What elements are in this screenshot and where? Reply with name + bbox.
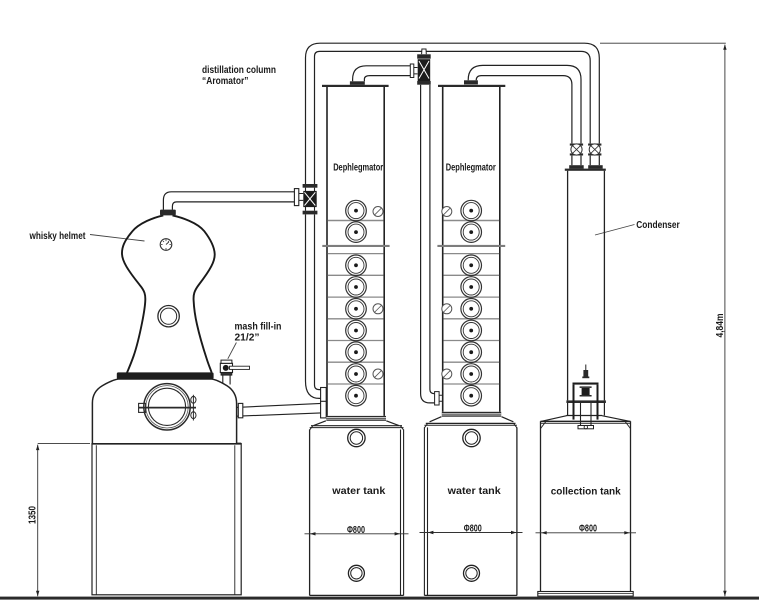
svg-text:“Aromator”: “Aromator” [202, 75, 249, 87]
svg-text:Condenser: Condenser [636, 219, 680, 231]
svg-text:whisky helmet: whisky helmet [29, 230, 86, 242]
svg-text:Dephlegmator: Dephlegmator [333, 163, 383, 174]
svg-text:water tank: water tank [331, 485, 385, 497]
svg-text:water tank: water tank [447, 485, 501, 497]
svg-text:Dephlegmator: Dephlegmator [446, 163, 496, 174]
svg-text:Φ800: Φ800 [347, 525, 365, 536]
svg-text:4,84m: 4,84m [715, 313, 726, 337]
svg-text:21/2”: 21/2” [235, 332, 260, 344]
svg-text:collection tank: collection tank [551, 486, 621, 498]
svg-text:1350: 1350 [28, 506, 39, 524]
